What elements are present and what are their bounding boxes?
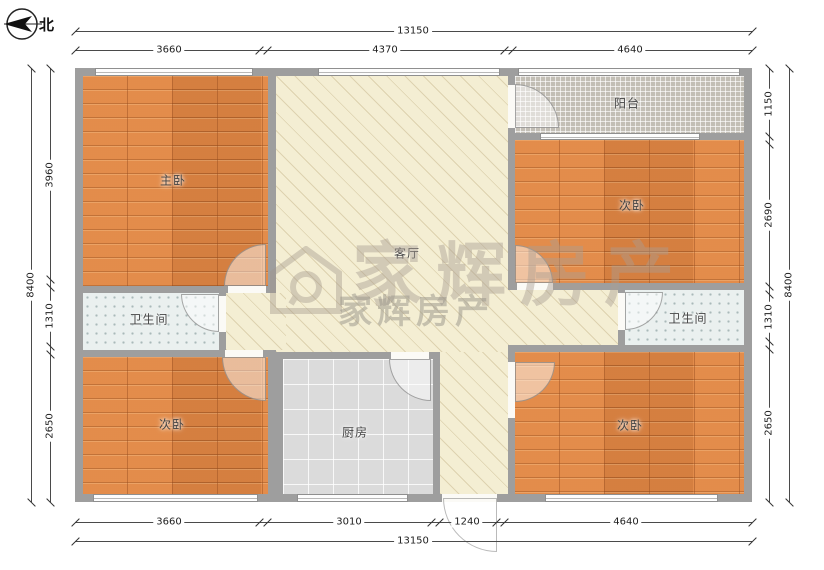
door-opening-bath-left	[219, 296, 226, 332]
window	[518, 68, 740, 76]
dim-bottom-seg-2: 1240	[451, 517, 482, 528]
dim-right-total: 8400	[784, 269, 795, 300]
window	[318, 68, 500, 76]
floor-plan-canvas: 北	[0, 0, 824, 570]
dim-left-seg-0: 3960	[45, 159, 56, 190]
door-opening-balcony	[508, 85, 515, 128]
dim-bottom-seg-0: 3660	[153, 517, 184, 528]
dim-right-seg-3: 2650	[764, 407, 775, 438]
dim-left-seg-1: 1310	[45, 300, 56, 331]
watermark-logo-icon	[270, 246, 342, 314]
door-opening-bed-right-bottom	[508, 362, 515, 418]
north-label: 北	[39, 14, 54, 35]
dim-right-seg-1: 2690	[764, 199, 775, 230]
dim-top-segments-line: 3660 4370 4640	[75, 50, 752, 51]
door-opening-bed-left-bottom	[225, 350, 263, 357]
room-label-balcony: 阳台	[614, 95, 640, 112]
watermark-brand-small: 家辉房产	[338, 284, 494, 333]
room-label-bed-left-bottom: 次卧	[159, 416, 185, 433]
dim-top-total-line: 13150	[75, 31, 752, 32]
dim-top-seg-0: 3660	[153, 45, 184, 56]
dim-right-seg-0: 1150	[764, 88, 775, 119]
room-label-master: 主卧	[160, 172, 186, 189]
dim-bottom-segments-line: 3660 3010 1240 4640	[75, 522, 752, 523]
dim-bottom-total-line: 13150	[75, 541, 752, 542]
dim-left-seg-2: 2650	[45, 410, 56, 441]
room-entry-hall	[440, 352, 508, 494]
window	[93, 494, 258, 502]
dim-right-total-line: 8400	[789, 68, 790, 502]
room-label-bath-left: 卫生间	[129, 311, 168, 328]
dim-left-total-line: 8400	[31, 68, 32, 502]
door-opening-kitchen	[391, 352, 429, 359]
room-label-bed-right-bottom: 次卧	[617, 417, 643, 434]
dim-left-segments-line: 3960 1310 2650	[50, 68, 51, 502]
window	[297, 494, 408, 502]
north-compass: 北	[2, 4, 48, 48]
dim-bottom-seg-1: 3010	[333, 517, 364, 528]
dim-top-seg-1: 4370	[369, 45, 400, 56]
window-balcony-inner	[540, 133, 700, 140]
dim-right-segments-line: 1150 2690 1310 2650	[769, 68, 770, 502]
window	[95, 68, 253, 76]
door-opening-master	[228, 286, 266, 293]
dim-right-seg-2: 1310	[764, 301, 775, 332]
dim-bottom-seg-3: 4640	[610, 517, 641, 528]
dim-left-total: 8400	[26, 269, 37, 300]
room-label-bed-right-top: 次卧	[619, 197, 645, 214]
dim-bottom-total: 13150	[394, 536, 432, 547]
room-label-kitchen: 厨房	[342, 424, 368, 441]
dim-top-seg-2: 4640	[614, 45, 645, 56]
window	[545, 494, 718, 502]
dim-top-total: 13150	[394, 26, 432, 37]
